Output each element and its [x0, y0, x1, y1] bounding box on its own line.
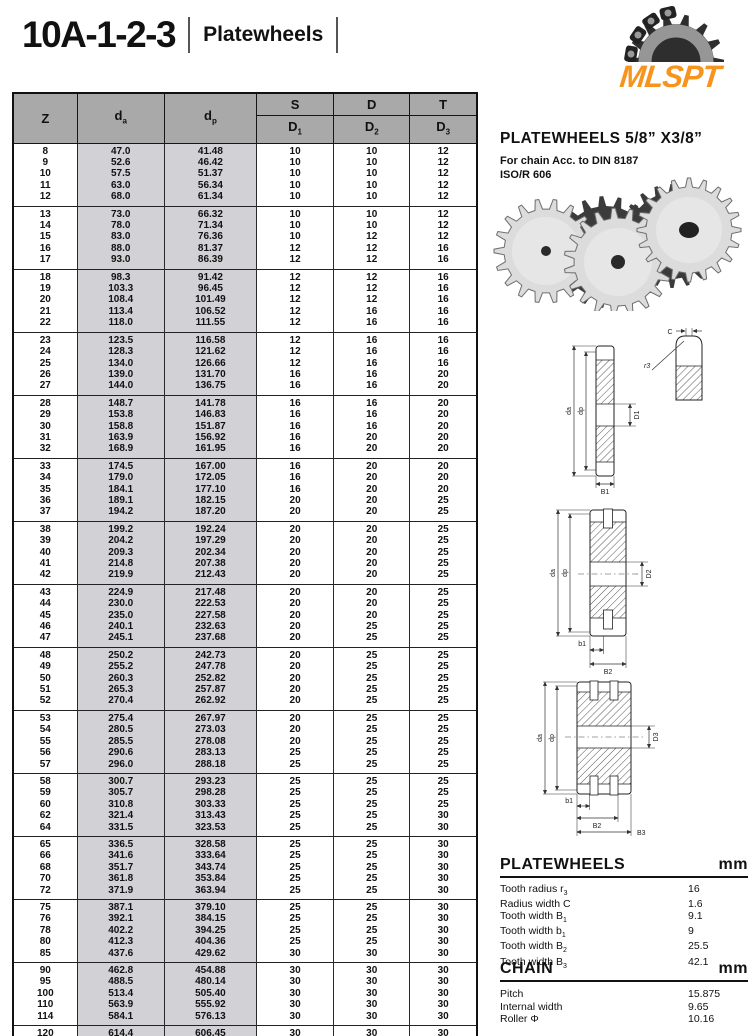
table-row: 1898.391.42121216	[13, 269, 477, 283]
table-row: 85437.6429.62303030	[13, 948, 477, 963]
spec-row: Tooth width B19.1	[500, 911, 748, 926]
table-row: 45235.0227.58202025	[13, 610, 477, 621]
col-s: S	[257, 93, 334, 116]
row-group: 38199.2192.2420202539204.2197.2920202540…	[13, 521, 477, 584]
table-row: 1583.076.36101212	[13, 231, 477, 242]
row-group: 58300.7293.2325252559305.7298.2825252560…	[13, 773, 477, 836]
brand-text: MLSPT	[594, 59, 746, 95]
table-row: 68351.7343.74252530	[13, 862, 477, 873]
spec-unit: mm	[719, 960, 748, 978]
col-t: T	[410, 93, 477, 116]
spec-table-chain: CHAIN mm Pitch15.875Internal width9.65Ro…	[500, 960, 748, 1026]
spec-title: CHAIN	[500, 960, 553, 978]
spec-unit: mm	[719, 856, 748, 874]
table-row: 62321.4313.43252530	[13, 810, 477, 821]
product-photo	[484, 156, 750, 311]
table-row: 60310.8303.33252525	[13, 799, 477, 810]
row-group: 43224.9217.4820202544230.0222.5320202545…	[13, 584, 477, 647]
table-row: 28148.7141.78161620	[13, 395, 477, 409]
table-row: 80412.3404.36252530	[13, 936, 477, 947]
table-row: 64331.5323.53252530	[13, 822, 477, 837]
col-d2: D2	[334, 116, 410, 144]
table-row: 72371.9363.94252530	[13, 885, 477, 900]
table-row: 47245.1237.68202525	[13, 632, 477, 647]
catalog-page: { "page": { "title": "10A-1-2-3", "subti…	[0, 0, 750, 1036]
row-group: 28148.7141.7816162029153.8146.8316162030…	[13, 395, 477, 458]
table-row: 1268.061.34101012	[13, 191, 477, 206]
table-row: 51265.3257.87202525	[13, 684, 477, 695]
row-group: 33174.5167.0016202034179.0172.0516202035…	[13, 458, 477, 521]
row-group: 847.041.48101012952.646.421010121057.551…	[13, 143, 477, 206]
table-row: 100513.4505.40303030	[13, 988, 477, 999]
svg-text:dp: dp	[549, 734, 556, 742]
table-row: 57296.0288.18252525	[13, 759, 477, 774]
table-row: 66341.6333.64252530	[13, 850, 477, 861]
page-header: 10A-1-2-3 Platewheels	[22, 16, 338, 54]
table-row: 24128.3121.62121616	[13, 346, 477, 357]
spec-rows: Pitch15.875Internal width9.65Roller Φ10.…	[500, 988, 748, 1026]
table-row: 34179.0172.05162020	[13, 472, 477, 483]
table-row: 40209.3202.34202025	[13, 547, 477, 558]
row-group: 1898.391.4212121619103.396.4512121620108…	[13, 269, 477, 332]
col-z: Z	[13, 93, 77, 143]
svg-text:da: da	[537, 734, 544, 742]
table-row: 952.646.42101012	[13, 157, 477, 168]
table-row: 120614.4606.45303030	[13, 1026, 477, 1036]
svg-text:da: da	[566, 407, 573, 415]
dimension-table: Z da dp S D T D1 D2 D3 847.041.481010129…	[12, 92, 478, 1036]
spec-table-platewheels: PLATEWHEELS mm Tooth radius r316Radius w…	[500, 856, 748, 972]
table-row: 26139.0131.70161620	[13, 369, 477, 380]
spec-row: Tooth width b19	[500, 926, 748, 941]
table-row: 23123.5116.58121616	[13, 332, 477, 346]
table-row: 33174.5167.00162020	[13, 458, 477, 472]
table-row: 30158.8151.87161620	[13, 421, 477, 432]
table-row: 20108.4101.49121216	[13, 294, 477, 305]
col-dp: dp	[164, 93, 256, 143]
table-row: 1057.551.37101012	[13, 168, 477, 179]
table-row: 49255.2247.78202525	[13, 661, 477, 672]
table-row: 56290.6283.13252525	[13, 747, 477, 758]
product-title: PLATEWHEELS 5/8” X3/8”	[500, 130, 750, 148]
col-d: D	[334, 93, 410, 116]
spec-heading: PLATEWHEELS mm	[500, 856, 748, 878]
table-row: 46240.1232.63202525	[13, 621, 477, 632]
table-row: 36189.1182.15202025	[13, 495, 477, 506]
table-row: 114584.1576.13303030	[13, 1011, 477, 1026]
spec-row: Pitch15.875	[500, 988, 748, 1001]
table-row: 65336.5328.58252530	[13, 836, 477, 850]
table-row: 38199.2192.24202025	[13, 521, 477, 535]
svg-text:B1: B1	[601, 489, 610, 496]
row-group: 75387.1379.1025253076392.1384.1525253078…	[13, 899, 477, 962]
table-row: 25134.0126.66121616	[13, 358, 477, 369]
table-row: 55285.5278.08202525	[13, 736, 477, 747]
spec-row: Tooth width B225.5	[500, 941, 748, 956]
svg-text:r3: r3	[644, 363, 650, 370]
table-row: 95488.5480.14303030	[13, 976, 477, 987]
spec-heading: CHAIN mm	[500, 960, 748, 982]
table-row: 53275.4267.97202525	[13, 710, 477, 724]
brand-logo: MLSPT	[596, 4, 744, 92]
svg-text:D2: D2	[646, 569, 653, 578]
table-row: 19103.396.45121216	[13, 283, 477, 294]
table-row: 22118.0111.55121616	[13, 317, 477, 332]
row-group: 65336.5328.5825253066341.6333.6425253068…	[13, 836, 477, 899]
table-row: 76392.1384.15252530	[13, 913, 477, 924]
table-row: 39204.2197.29202025	[13, 535, 477, 546]
row-group: 53275.4267.9720252554280.5273.0320252555…	[13, 710, 477, 773]
row-group: 1373.066.321010121478.071.341010121583.0…	[13, 206, 477, 269]
svg-text:B3: B3	[637, 830, 646, 837]
table-row: 52270.4262.92202525	[13, 695, 477, 710]
svg-text:D3: D3	[653, 732, 660, 741]
diagram-single: D1 da dp B1 C r3	[530, 326, 740, 496]
spec-row: Tooth radius r316	[500, 884, 748, 899]
svg-text:B2: B2	[593, 823, 602, 830]
table-row: 59305.7298.28252525	[13, 787, 477, 798]
table-header: Z da dp S D T D1 D2 D3	[13, 93, 477, 143]
svg-text:dp: dp	[562, 569, 569, 577]
table-row: 29153.8146.83161620	[13, 409, 477, 420]
col-da: da	[77, 93, 164, 143]
spec-row: Roller Φ10.16	[500, 1013, 748, 1026]
svg-text:b1: b1	[578, 641, 586, 648]
table-row: 35184.1177.10162020	[13, 484, 477, 495]
table-row: 1163.056.34101012	[13, 180, 477, 191]
diagram-double: D2 da dp b1 B2	[530, 502, 740, 676]
svg-text:da: da	[550, 569, 557, 577]
table-row: 847.041.48101012	[13, 143, 477, 157]
spec-row: Internal width9.65	[500, 1001, 748, 1014]
table-row: 21113.4106.52121616	[13, 306, 477, 317]
table-row: 32168.9161.95162020	[13, 443, 477, 458]
table-row: 42219.9212.43202025	[13, 569, 477, 584]
table-row: 43224.9217.48202025	[13, 584, 477, 598]
svg-text:C: C	[667, 329, 672, 336]
table-row: 90462.8454.88303030	[13, 963, 477, 977]
svg-text:B2: B2	[604, 669, 613, 676]
table-row: 37194.2187.20202025	[13, 506, 477, 521]
table-row: 50260.3252.82202525	[13, 673, 477, 684]
table-row: 110563.9555.92303030	[13, 999, 477, 1010]
table-row: 1688.081.37121216	[13, 243, 477, 254]
svg-text:D1: D1	[634, 410, 641, 419]
table-row: 48250.2242.73202525	[13, 647, 477, 661]
divider	[188, 17, 190, 53]
table-row: 1793.086.39121216	[13, 254, 477, 269]
table-row: 58300.7293.23252525	[13, 773, 477, 787]
page-title: 10A-1-2-3	[22, 16, 175, 54]
row-group: 90462.8454.8830303095488.5480.1430303010…	[13, 963, 477, 1026]
col-d3: D3	[410, 116, 477, 144]
spec-row: Radius width C1.6	[500, 899, 748, 910]
col-d1: D1	[257, 116, 334, 144]
table-row: 70361.8353.84252530	[13, 873, 477, 884]
row-group: 120614.4606.45303030125639.7631.51303030	[13, 1026, 477, 1036]
page-subtitle: Platewheels	[203, 23, 323, 47]
spec-rows: Tooth radius r316Radius width C1.6Tooth …	[500, 884, 748, 972]
row-group: 48250.2242.7320252549255.2247.7820252550…	[13, 647, 477, 710]
table-row: 41214.8207.38202025	[13, 558, 477, 569]
table-row: 75387.1379.10252530	[13, 899, 477, 913]
table-row: 31163.9156.92162020	[13, 432, 477, 443]
spec-title: PLATEWHEELS	[500, 856, 625, 874]
row-group: 23123.5116.5812161624128.3121.6212161625…	[13, 332, 477, 395]
divider	[336, 17, 338, 53]
table-row: 78402.2394.25252530	[13, 925, 477, 936]
svg-text:dp: dp	[578, 407, 585, 415]
table-row: 1373.066.32101012	[13, 206, 477, 220]
table-row: 1478.071.34101012	[13, 220, 477, 231]
diagram-triple: D3 da dp b1 B2 B3	[525, 676, 750, 840]
svg-text:b1: b1	[565, 798, 573, 805]
table-row: 27144.0136.75161620	[13, 380, 477, 395]
table-row: 44230.0222.53202025	[13, 598, 477, 609]
table-row: 54280.5273.03202525	[13, 724, 477, 735]
